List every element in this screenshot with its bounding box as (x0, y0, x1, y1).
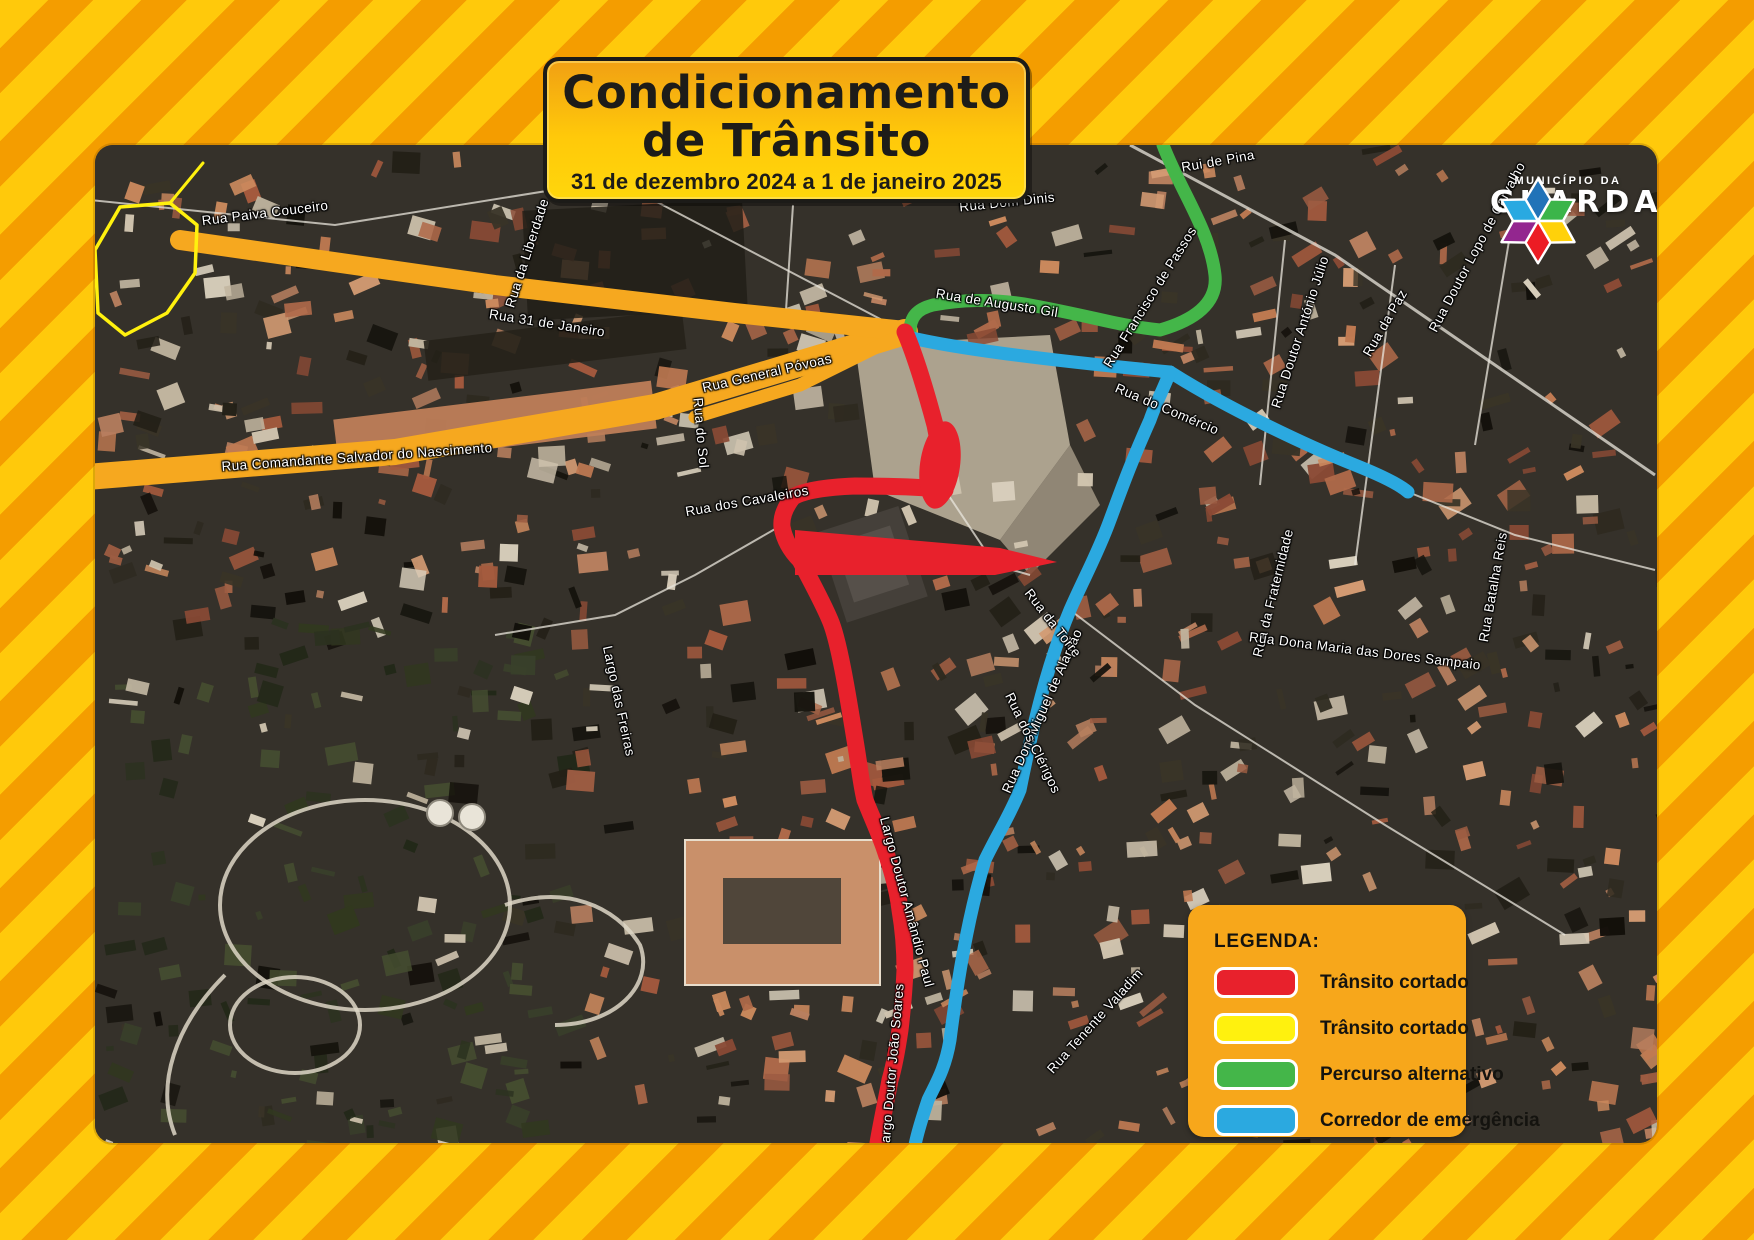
legend-label: Trânsito cortado (1320, 972, 1469, 994)
satellite-map: Rua Paiva CouceiroRua da LiberdadeRua 31… (95, 145, 1657, 1143)
page-title-line2: de Trânsito (547, 117, 1026, 165)
legend-label: Corredor de emergência (1320, 1110, 1540, 1132)
route-yellow-stub-1 (170, 163, 203, 203)
legend-row-corredor-emergencia: Corredor de emergência (1214, 1105, 1446, 1136)
page-subtitle-dates: 31 de dezembro 2024 a 1 de janeiro 2025 (547, 169, 1026, 195)
legend-row-percurso-alternativo: Percurso alternativo (1214, 1059, 1446, 1090)
route-transito-cortado-yellow-zone (95, 203, 197, 335)
red-swatch (1214, 967, 1298, 998)
legend-label: Percurso alternativo (1320, 1064, 1504, 1086)
route-corredor-emergencia-blue-comercio (1170, 372, 1408, 492)
legend: LEGENDA: Trânsito cortado Trânsito corta… (1188, 905, 1466, 1137)
route-red-square-band (795, 530, 1057, 575)
legend-label: Trânsito cortado (1320, 1018, 1469, 1040)
legend-row-transito-cortado-red: Trânsito cortado (1214, 967, 1446, 998)
green-swatch (1214, 1059, 1298, 1090)
legend-heading: LEGENDA: (1214, 931, 1446, 953)
blue-swatch (1214, 1105, 1298, 1136)
route-transito-cortado-red (782, 332, 945, 1143)
route-corredor-emergencia-blue-main (912, 338, 1170, 372)
municipio-guarda-logo: MUNICÍPIO DA GUARDA (1490, 173, 1646, 220)
traffic-restriction-poster: Rua Paiva CouceiroRua da LiberdadeRua 31… (0, 0, 1754, 1240)
title-plate: Condicionamento de Trânsito 31 de dezemb… (543, 57, 1030, 203)
yellow-swatch (1214, 1013, 1298, 1044)
main-road-31-janeiro (180, 240, 905, 331)
legend-row-transito-cortado-yellow: Trânsito cortado (1214, 1013, 1446, 1044)
route-red-widening (914, 419, 966, 512)
guarda-hex-logo-icon (1490, 173, 1586, 269)
main-road-comandante-nascimento (95, 332, 905, 477)
page-title-line1: Condicionamento (547, 69, 1026, 117)
